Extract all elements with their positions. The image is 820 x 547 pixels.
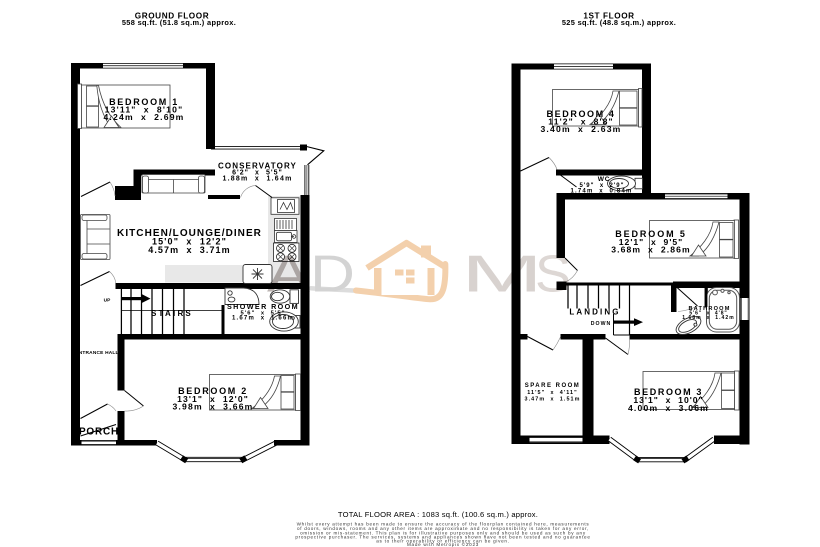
svg-text:3.40m x 2.63m: 3.40m x 2.63m [540, 124, 621, 134]
svg-text:TOTAL FLOOR AREA : 1083 sq.ft.: TOTAL FLOOR AREA : 1083 sq.ft. (100.6 sq… [338, 510, 538, 519]
svg-text:3.68m x 2.86m: 3.68m x 2.86m [611, 244, 691, 254]
svg-text:4.57m x 3.71m: 4.57m x 3.71m [148, 245, 231, 255]
svg-text:WC: WC [598, 176, 611, 183]
svg-text:525 sq.ft. (48.8 sq.m.) approx: 525 sq.ft. (48.8 sq.m.) approx. [562, 18, 676, 27]
svg-text:4.00m x 3.06m: 4.00m x 3.06m [628, 403, 709, 413]
svg-text:D: D [310, 246, 355, 304]
svg-text:UP: UP [104, 298, 111, 304]
svg-text:S: S [535, 246, 571, 304]
svg-text:3.47m x 1.51m: 3.47m x 1.51m [524, 397, 580, 403]
svg-text:SPARE ROOM: SPARE ROOM [525, 383, 581, 389]
svg-text:4.24m x 2.69m: 4.24m x 2.69m [103, 112, 184, 122]
svg-text:LANDING: LANDING [569, 308, 620, 317]
svg-text:558 sq.ft. (51.8 sq.m.) approx: 558 sq.ft. (51.8 sq.m.) approx. [122, 18, 236, 27]
svg-text:1.88m x 1.64m: 1.88m x 1.64m [222, 176, 292, 183]
svg-text:STAIRS: STAIRS [151, 309, 193, 318]
svg-text:1.74m x 0.84m: 1.74m x 0.84m [570, 189, 632, 195]
svg-text:1.67m x 1.66m: 1.67m x 1.66m [232, 315, 294, 321]
svg-text:PORCH: PORCH [79, 427, 119, 438]
svg-text:1.68m x 1.42m: 1.68m x 1.42m [682, 315, 734, 321]
svg-text:3.98m x 3.66m: 3.98m x 3.66m [172, 401, 253, 411]
svg-text:11'5" x 4'11": 11'5" x 4'11" [527, 390, 578, 396]
svg-text:A: A [267, 246, 310, 304]
svg-text:ENTRANCE HALL: ENTRANCE HALL [75, 350, 118, 356]
svg-text:Made with Metropix ©2023: Made with Metropix ©2023 [407, 541, 479, 547]
svg-text:DOWN: DOWN [591, 321, 611, 327]
svg-text:M: M [461, 246, 543, 304]
